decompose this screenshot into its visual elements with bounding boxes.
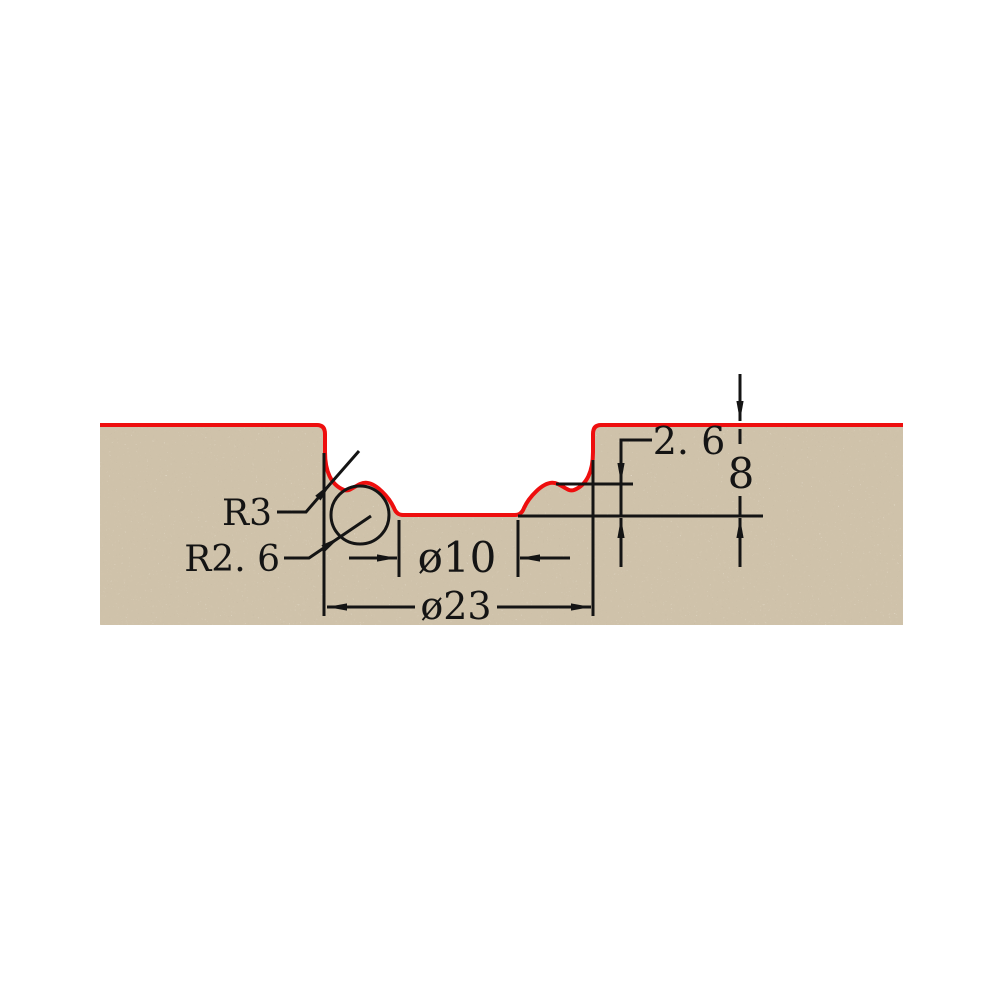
label-outer-diameter: ø23	[420, 584, 491, 628]
label-total-depth: 8	[728, 449, 755, 498]
label-step-depth: 2. 6	[653, 419, 726, 463]
label-inner-diameter: ø10	[418, 533, 497, 582]
label-radius-large: R3	[222, 493, 272, 534]
sand-texture-light	[95, 418, 910, 630]
label-radius-small: R2. 6	[184, 539, 280, 580]
profile-cross-section-drawing: R3 R2. 6 ø10 ø23 2. 6 8	[0, 0, 1000, 1000]
material-cross-section	[95, 418, 910, 630]
drawing-canvas: R3 R2. 6 ø10 ø23 2. 6 8	[0, 0, 1000, 1000]
